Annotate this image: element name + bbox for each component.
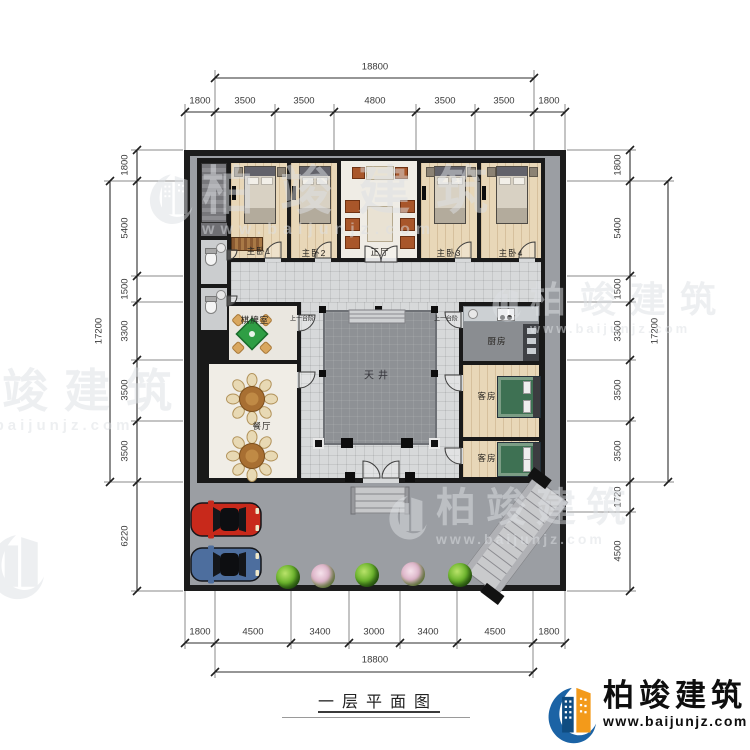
armchair (395, 167, 408, 179)
dim-top-overall: 18800 (362, 62, 388, 73)
sink-icon (216, 243, 226, 253)
label-chess: 棋牌室 (241, 314, 270, 326)
label-master2: 主卧2 (302, 247, 327, 259)
column-base (313, 438, 324, 449)
corridor-north (231, 262, 541, 302)
dim-bottom-seg: 1800 (189, 627, 210, 638)
fridge-icon (523, 324, 539, 361)
label-step-up-left: 上一台阶 (290, 314, 314, 323)
sofa (345, 236, 360, 249)
door-opening (297, 372, 301, 388)
column (431, 306, 438, 313)
dim-right-overall: 17200 (650, 318, 661, 344)
brand-url: www.baijunjz.com (603, 713, 748, 729)
dim-top-seg: 3500 (434, 96, 455, 107)
label-master4: 主卧4 (499, 247, 524, 259)
bed (496, 166, 528, 224)
title-underline (318, 711, 440, 713)
tv-icon (292, 186, 296, 200)
sofa (345, 218, 360, 231)
sofa (400, 200, 415, 213)
main-gate-opening (363, 477, 399, 483)
dim-left-seg: 5400 (120, 217, 131, 238)
column (341, 438, 353, 448)
dim-bottom-overall: 18800 (362, 655, 388, 666)
dim-bottom-seg: 4500 (484, 627, 505, 638)
dim-bottom-seg: 3400 (309, 627, 330, 638)
guest-bed (497, 442, 541, 477)
kitchen-sink-icon (468, 309, 478, 319)
nightstand (487, 167, 496, 177)
column (375, 306, 382, 313)
column (345, 472, 355, 482)
bed (244, 166, 276, 224)
baijun-logo-watermark-icon (0, 522, 46, 604)
label-guest2: 客房 (477, 452, 496, 464)
label-hall: 正厅 (370, 246, 389, 258)
bush (311, 564, 335, 588)
watermark: 柏竣建筑 www.baijunjz.com (0, 368, 188, 434)
dim-left-seg: 1800 (120, 154, 131, 175)
dim-right-seg: 1800 (613, 154, 624, 175)
guest-bed (497, 376, 541, 418)
baijun-logo-icon (543, 679, 599, 745)
dim-top-seg: 3500 (493, 96, 514, 107)
sofa (345, 200, 360, 213)
dim-top-seg: 4800 (364, 96, 385, 107)
floor-plan-page: { "title": { "text": "一层平面图" }, "brand":… (0, 0, 750, 750)
door-opening (265, 258, 281, 262)
column (319, 306, 326, 313)
nightstand (467, 167, 476, 177)
toilet-icon (205, 300, 217, 314)
wardrobe (201, 163, 227, 223)
dim-bottom-seg: 4500 (242, 627, 263, 638)
dim-bottom-seg: 3400 (417, 627, 438, 638)
dim-right-seg: 5400 (613, 217, 624, 238)
label-master1: 主卧1 (247, 245, 272, 257)
column (405, 472, 415, 482)
dim-top-seg: 3500 (293, 96, 314, 107)
column (401, 438, 413, 448)
title-underline-2 (282, 717, 470, 718)
bush (355, 563, 379, 587)
drawing-title: 一层平面图 (318, 688, 438, 712)
door-opening (459, 375, 463, 391)
nightstand (277, 167, 286, 177)
bush (276, 565, 300, 589)
label-kitchen: 厨房 (487, 335, 506, 347)
dim-top-seg: 3500 (234, 96, 255, 107)
bush (401, 562, 425, 586)
brand-logo: 柏竣建筑 www.baijunjz.com (543, 679, 748, 745)
toilet-icon (205, 252, 217, 266)
dim-right-seg: 3500 (613, 379, 624, 400)
column (319, 370, 326, 377)
dim-top-seg: 1800 (538, 96, 559, 107)
dim-right-seg: 1500 (613, 278, 624, 299)
nightstand (426, 167, 435, 177)
dim-bottom-seg: 1800 (538, 627, 559, 638)
stove-icon (497, 308, 515, 321)
sofa (400, 218, 415, 231)
label-dining: 餐厅 (252, 420, 271, 432)
dim-right-seg: 3300 (613, 320, 624, 341)
dim-right-seg: 3500 (613, 440, 624, 461)
watermark (0, 522, 46, 604)
dim-left-overall: 17200 (94, 318, 105, 344)
dim-top-seg: 1800 (189, 96, 210, 107)
bush (448, 563, 472, 587)
hall-table (366, 166, 394, 180)
label-courtyard: 天井 (364, 367, 392, 382)
armchair (352, 167, 365, 179)
nightstand (234, 167, 243, 177)
column-base (429, 438, 440, 449)
tv-icon (232, 186, 236, 200)
dim-bottom-seg: 3000 (363, 627, 384, 638)
dim-right-seg: 4500 (613, 540, 624, 561)
dim-left-seg: 1500 (120, 278, 131, 299)
dim-left-seg: 3500 (120, 440, 131, 461)
column (431, 370, 438, 377)
door-opening (365, 258, 397, 262)
tv-icon (422, 186, 426, 200)
dim-left-seg: 3500 (120, 379, 131, 400)
label-guest1: 客房 (477, 390, 496, 402)
coffee-table (367, 206, 393, 242)
door-opening (459, 448, 463, 464)
bed (299, 166, 331, 224)
sink-icon (216, 290, 226, 300)
tv-icon (482, 186, 486, 200)
sofa (400, 236, 415, 249)
label-step-up-right: 上一台阶 (434, 314, 458, 323)
dim-left-seg: 3300 (120, 320, 131, 341)
bed (434, 166, 466, 224)
brand-name: 柏竣建筑 (603, 679, 748, 713)
label-master3: 主卧3 (437, 247, 462, 259)
dim-left-seg: 6220 (120, 525, 131, 546)
nightstand (529, 167, 538, 177)
dim-right-seg: 1720 (613, 486, 624, 507)
